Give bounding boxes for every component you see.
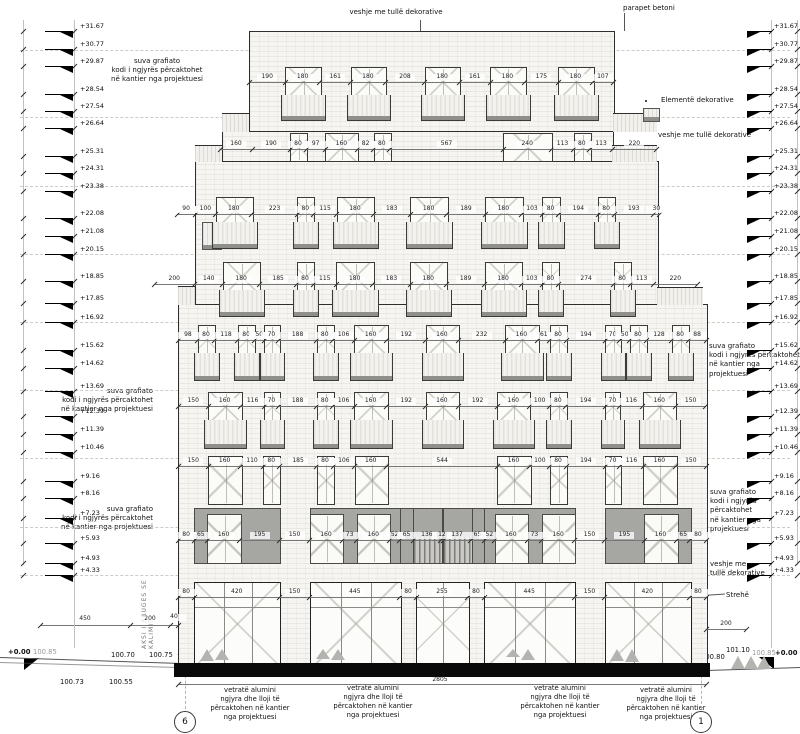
level-label: +27.54 [774,102,798,110]
level-flag-triangle [60,174,73,180]
window-balcony [481,290,527,317]
detail [661,516,662,562]
dim-label: 180 [231,276,251,283]
dim-label: 160 [226,141,246,148]
dim-label: 223 [265,206,285,213]
dim-label: 73 [340,532,360,539]
bush [610,649,624,661]
dim-label: 192 [396,398,416,405]
dim-label: 150 [183,398,203,405]
detail [374,516,375,562]
level-flag-triangle [60,255,73,261]
level-flag-triangle [60,282,73,288]
level-label: +4.33 [774,566,794,574]
level-flag-triangle [60,519,73,525]
level-label: +21.08 [774,227,798,235]
level-label: +26.64 [80,119,104,127]
level-chain-1 [74,20,75,648]
level-label: +24.31 [80,164,104,172]
dim-label: 180 [565,74,585,81]
window-sill [261,376,283,380]
bush [200,649,214,661]
dim-label: 240 [517,141,537,148]
level-flag-triangle [60,95,73,101]
dim-label: 200 [164,276,184,283]
axis-circle-6: 6 [174,711,196,733]
dim-label: 113 [591,141,611,148]
window-sill [502,376,542,380]
window-sill [547,444,571,448]
mezzanine-door [644,514,678,564]
level-label: +26.64 [774,119,798,127]
bush [757,656,771,669]
detail [225,516,226,562]
level-label: +24.31 [774,164,798,172]
level-flag-triangle [747,576,760,582]
level-label: +20.15 [80,245,104,253]
dim-label: 190 [261,141,281,148]
ground-base-slab [174,663,710,677]
dim-label: 80 [176,589,196,596]
window-sill [282,116,324,120]
level-label: +16.92 [774,313,798,321]
dim-label: 160 [331,141,351,148]
window-balcony [493,420,535,449]
level-flag-triangle [747,129,760,135]
dim-label: 106 [334,332,354,339]
dim-label: 160 [503,458,523,465]
window-balcony [204,420,246,449]
window-balcony [601,420,625,449]
dim-label: 185 [288,458,308,465]
dim-label: 90 [176,206,196,213]
dim-label: 73 [524,532,544,539]
window-balcony [347,95,391,121]
level-flag-triangle [60,32,73,38]
level-flag-triangle [60,129,73,135]
dim-label: 80 [688,532,708,539]
window-balcony [281,95,325,121]
dim-label: 80 [688,589,708,596]
dim-label: 445 [345,589,365,596]
window-sill [627,376,651,380]
level-flag-triangle [747,255,760,261]
window-balcony [260,420,284,449]
dim-label: 175 [531,74,551,81]
level-label: +15.62 [774,341,798,349]
window-balcony [219,290,265,317]
dim-label: 80 [548,458,568,465]
dim-label: 52 [479,532,499,539]
dim-label: 100 [530,458,550,465]
spot-10075: 100.75 [149,651,173,659]
dim-label: 445 [519,589,539,596]
detail [606,607,691,608]
window-sill [494,444,534,448]
dim-label: 110 [242,458,262,465]
window-sill [205,444,245,448]
level-label: +15.62 [80,341,104,349]
dim-label: 80 [612,276,632,283]
detail [545,583,546,664]
bush [625,649,639,662]
dim-label: 150 [285,589,305,596]
level-flag-triangle [60,417,73,423]
dim-label: 160 [649,458,669,465]
level-flag-triangle [60,435,73,441]
dim-tick [695,281,701,287]
window-balcony [538,290,564,317]
level-flag-triangle [747,499,760,505]
level-flag-triangle [60,112,73,118]
bush [744,656,758,669]
dim-label: 103 [522,206,542,213]
window-sill [334,244,378,248]
window-balcony [194,353,220,381]
window-balcony [313,353,339,381]
parapet-strip-0 [222,113,249,132]
level-label: +20.15 [774,245,798,253]
window-balcony [554,95,598,121]
dim-label: 189 [456,276,476,283]
level-label: +25.31 [80,147,104,155]
level-tick [795,572,800,578]
dim-label: 161 [325,74,345,81]
window-sill [669,376,693,380]
window-sill [294,244,318,248]
level-flag-triangle [60,392,73,398]
level-flag-triangle [60,453,73,459]
window-sill [555,116,597,120]
level-flag-triangle [747,351,760,357]
detail [252,583,253,664]
level-flag-triangle [60,499,73,505]
dim-label: 180 [432,74,452,81]
dim-label: 180 [345,276,365,283]
spot-zero-left: +0.00 [8,648,30,656]
window-balcony [422,420,464,449]
dim-label: 180 [497,74,517,81]
axis-circle-1: 1 [690,711,712,733]
spot-zero-right: +0.00 [775,649,797,657]
window-sill [487,116,529,120]
dim-label: 274 [576,276,596,283]
dim-label: 70 [602,398,622,405]
window-balcony [601,353,625,381]
level-label: +16.92 [80,313,104,321]
window-balcony [546,420,572,449]
window-balcony [538,222,564,249]
site-dim-label: 450 [73,616,97,623]
dim-label: 195 [614,532,634,539]
dim-label: 160 [503,398,523,405]
window-balcony [421,95,465,121]
level-flag-triangle [60,576,73,582]
dim-label: 160 [316,532,336,539]
dim-label: 194 [576,458,596,465]
level-flag-triangle [60,369,73,375]
label-parapet-betoni: parapet betoni [623,4,675,13]
level-label: +29.87 [80,57,104,65]
dim-label: 567 [437,141,457,148]
dim-label: 160 [501,532,521,539]
level-label: +27.54 [80,102,104,110]
detail [311,607,401,608]
level-flag-triangle [60,564,73,570]
window-sill [423,444,463,448]
dim-label: 188 [288,398,308,405]
dim-label: 115 [315,206,335,213]
dim-label: 160 [215,458,235,465]
site-dim-label: 2805 [428,677,452,684]
level-flag-triangle [60,304,73,310]
dim-label: 180 [224,206,244,213]
dim-label: 80 [315,458,335,465]
window-sill [539,244,563,248]
level-flag-triangle [747,564,760,570]
dim-label: 150 [681,458,701,465]
dim-label: 193 [624,206,644,213]
label-vetrate-3: vetratë alumini ngjyra dhe lloji të përc… [500,684,620,720]
dim-label: 113 [553,141,573,148]
window-sill [220,312,264,316]
level-label: +10.46 [80,443,104,451]
dim-label: 189 [456,206,476,213]
detail [485,607,575,608]
level-flag-triangle [747,174,760,180]
level-label: +28.54 [80,85,104,93]
dim-label: 80 [261,458,281,465]
dim-label: 100 [530,398,550,405]
dim-label: 185 [268,276,288,283]
level-flag-triangle [60,157,73,163]
site-dim-line [40,625,178,626]
dim-label: 150 [183,458,203,465]
dim-label: 160 [361,332,381,339]
label-suva-grafiato-top-left: suva grafiato kodi i ngjyrës përcaktohet… [95,57,219,85]
dim-label: 116 [621,458,641,465]
dim-label: 194 [576,332,596,339]
bush [215,649,229,660]
dim-label: 80 [398,589,418,596]
dim-label: 116 [621,398,641,405]
leader-parapet [624,13,625,31]
window-balcony [406,222,452,249]
window-sill [407,312,451,316]
dim-label: 220 [665,276,685,283]
dim-label: 180 [345,206,365,213]
level-chain-0 [23,20,24,565]
dim-label: 116 [243,398,263,405]
dim-label: 65 [191,532,211,539]
bush [521,649,535,660]
dim-label: 80 [372,141,392,148]
spot-10085-left: 100.85 [33,648,57,656]
dim-label: 160 [548,532,568,539]
site-dim-line [178,684,706,685]
window-sill [351,376,391,380]
level-label: +4.33 [80,566,100,574]
dim-label: 208 [395,74,415,81]
window-sill [602,444,624,448]
dim-label: 106 [334,398,354,405]
dim-label: 106 [334,458,354,465]
detail [512,516,513,562]
dim-label: 160 [361,398,381,405]
window-sill [640,444,680,448]
window-balcony [610,290,636,317]
level-flag-triangle [747,453,760,459]
dim-label: 70 [261,398,281,405]
dim-line-floor-3 [178,406,706,407]
dim-label: 180 [419,206,439,213]
dim-label: 195 [250,532,270,539]
window-sill [482,312,526,316]
dim-label: 100 [195,206,215,213]
bush [731,656,745,669]
dim-label: 420 [637,589,657,596]
dim-label: 160 [650,532,670,539]
dim-label: 140 [199,276,219,283]
level-label: +31.67 [774,22,798,30]
window-sill [314,376,338,380]
level-label: +11.39 [774,425,798,433]
dim-label: 70 [261,332,281,339]
site-dim-label: 200 [714,621,738,628]
label-vetrate-1: vetratë alumini ngjyra dhe lloji të përc… [190,686,310,722]
dim-label: 150 [579,532,599,539]
detail [662,583,663,664]
label-elemente-dekorative: Elementë dekorative [661,96,734,105]
dim-label: 160 [363,532,383,539]
level-label: +14.62 [774,359,798,367]
level-chain-2 [771,20,772,648]
dim-label: 192 [396,332,416,339]
window-sill [213,244,257,248]
dim-label: 97 [306,141,326,148]
level-label: +8.16 [774,489,794,497]
dim-label: 70 [603,458,623,465]
detail [559,516,560,562]
dim-label: 98 [178,332,198,339]
level-flag-triangle [747,282,760,288]
spot-10110: 101.10 [726,646,750,654]
level-label: +5.93 [80,534,100,542]
level-label: +11.39 [80,425,104,433]
dim-label: 80 [596,206,616,213]
level-label: +18.85 [80,272,104,280]
level-label: +7.23 [80,509,100,517]
dim-label: 255 [432,589,452,596]
spot-10073: 100.73 [60,678,84,686]
site-dim-line [706,629,746,630]
window-balcony [486,95,530,121]
dim-label: 190 [257,74,277,81]
level-label: +30.77 [80,40,104,48]
level-flag-triangle [747,369,760,375]
dim-label: 118 [216,332,236,339]
level-label: +17.85 [774,294,798,302]
dim-label: 113 [632,276,652,283]
level-label: +28.54 [774,85,798,93]
label-veshje-tulle-dekorative-top: veshje me tullë dekorative [315,8,477,17]
level-flag-triangle [747,192,760,198]
dim-label: 420 [227,589,247,596]
level-label: +31.67 [80,22,104,30]
window-sill [351,444,391,448]
level-flag-triangle [747,32,760,38]
level-flag-triangle [747,392,760,398]
dim-label: 194 [576,398,596,405]
dim-label: 180 [493,206,513,213]
window-balcony [350,420,392,449]
dim-label: 194 [568,206,588,213]
dim-label: 115 [315,276,335,283]
dim-label: 160 [215,398,235,405]
level-label: +18.85 [774,272,798,280]
dim-line-floor-2 [178,466,706,467]
leader-dot-elemente [645,100,647,102]
level-label: +13.69 [774,382,798,390]
dim-label: 150 [285,532,305,539]
parapet-strip-4 [178,286,195,305]
mezzanine-door [495,514,529,564]
level-flag-triangle [747,237,760,243]
window-balcony [260,353,284,381]
mezzanine-door [357,514,391,564]
dim-line-ground-floor [178,597,706,598]
level-label: +29.87 [774,57,798,65]
window-sill [547,376,571,380]
level-label: +12.39 [80,407,104,415]
window-sill [602,376,624,380]
level-label: +12.39 [774,407,798,415]
window-sill [333,312,377,316]
level-flag-triangle [60,237,73,243]
site-dim-label: 200 [138,616,162,623]
level-flag-triangle [60,192,73,198]
level-flag-triangle [747,219,760,225]
window-balcony [313,420,339,449]
dim-label: 183 [381,276,401,283]
site-dim-label: 40 [162,614,186,621]
window-sill [611,312,635,316]
level-label: +22.08 [80,209,104,217]
window-balcony [546,353,572,381]
level-flag-triangle [60,544,73,550]
window-sill [595,244,619,248]
spot-10055: 100.55 [109,678,133,686]
level-flag-triangle [747,544,760,550]
level-label: +22.08 [774,209,798,217]
dim-label: 180 [358,74,378,81]
detail [327,516,328,562]
level-label: +5.93 [774,534,794,542]
window-sill [422,116,464,120]
elevation-drawing: veshje me tullë dekorative parapet beton… [0,0,800,734]
dim-label: 180 [293,74,313,81]
window-balcony [332,290,378,317]
dim-label: 30 [646,206,666,213]
dim-label: 80 [548,398,568,405]
window-balcony [293,222,319,249]
window-sill [482,244,526,248]
level-label: +17.85 [80,294,104,302]
dim-label: 128 [649,332,669,339]
level-label: +23.38 [774,182,798,190]
bush [506,649,520,657]
window-balcony [350,353,392,381]
